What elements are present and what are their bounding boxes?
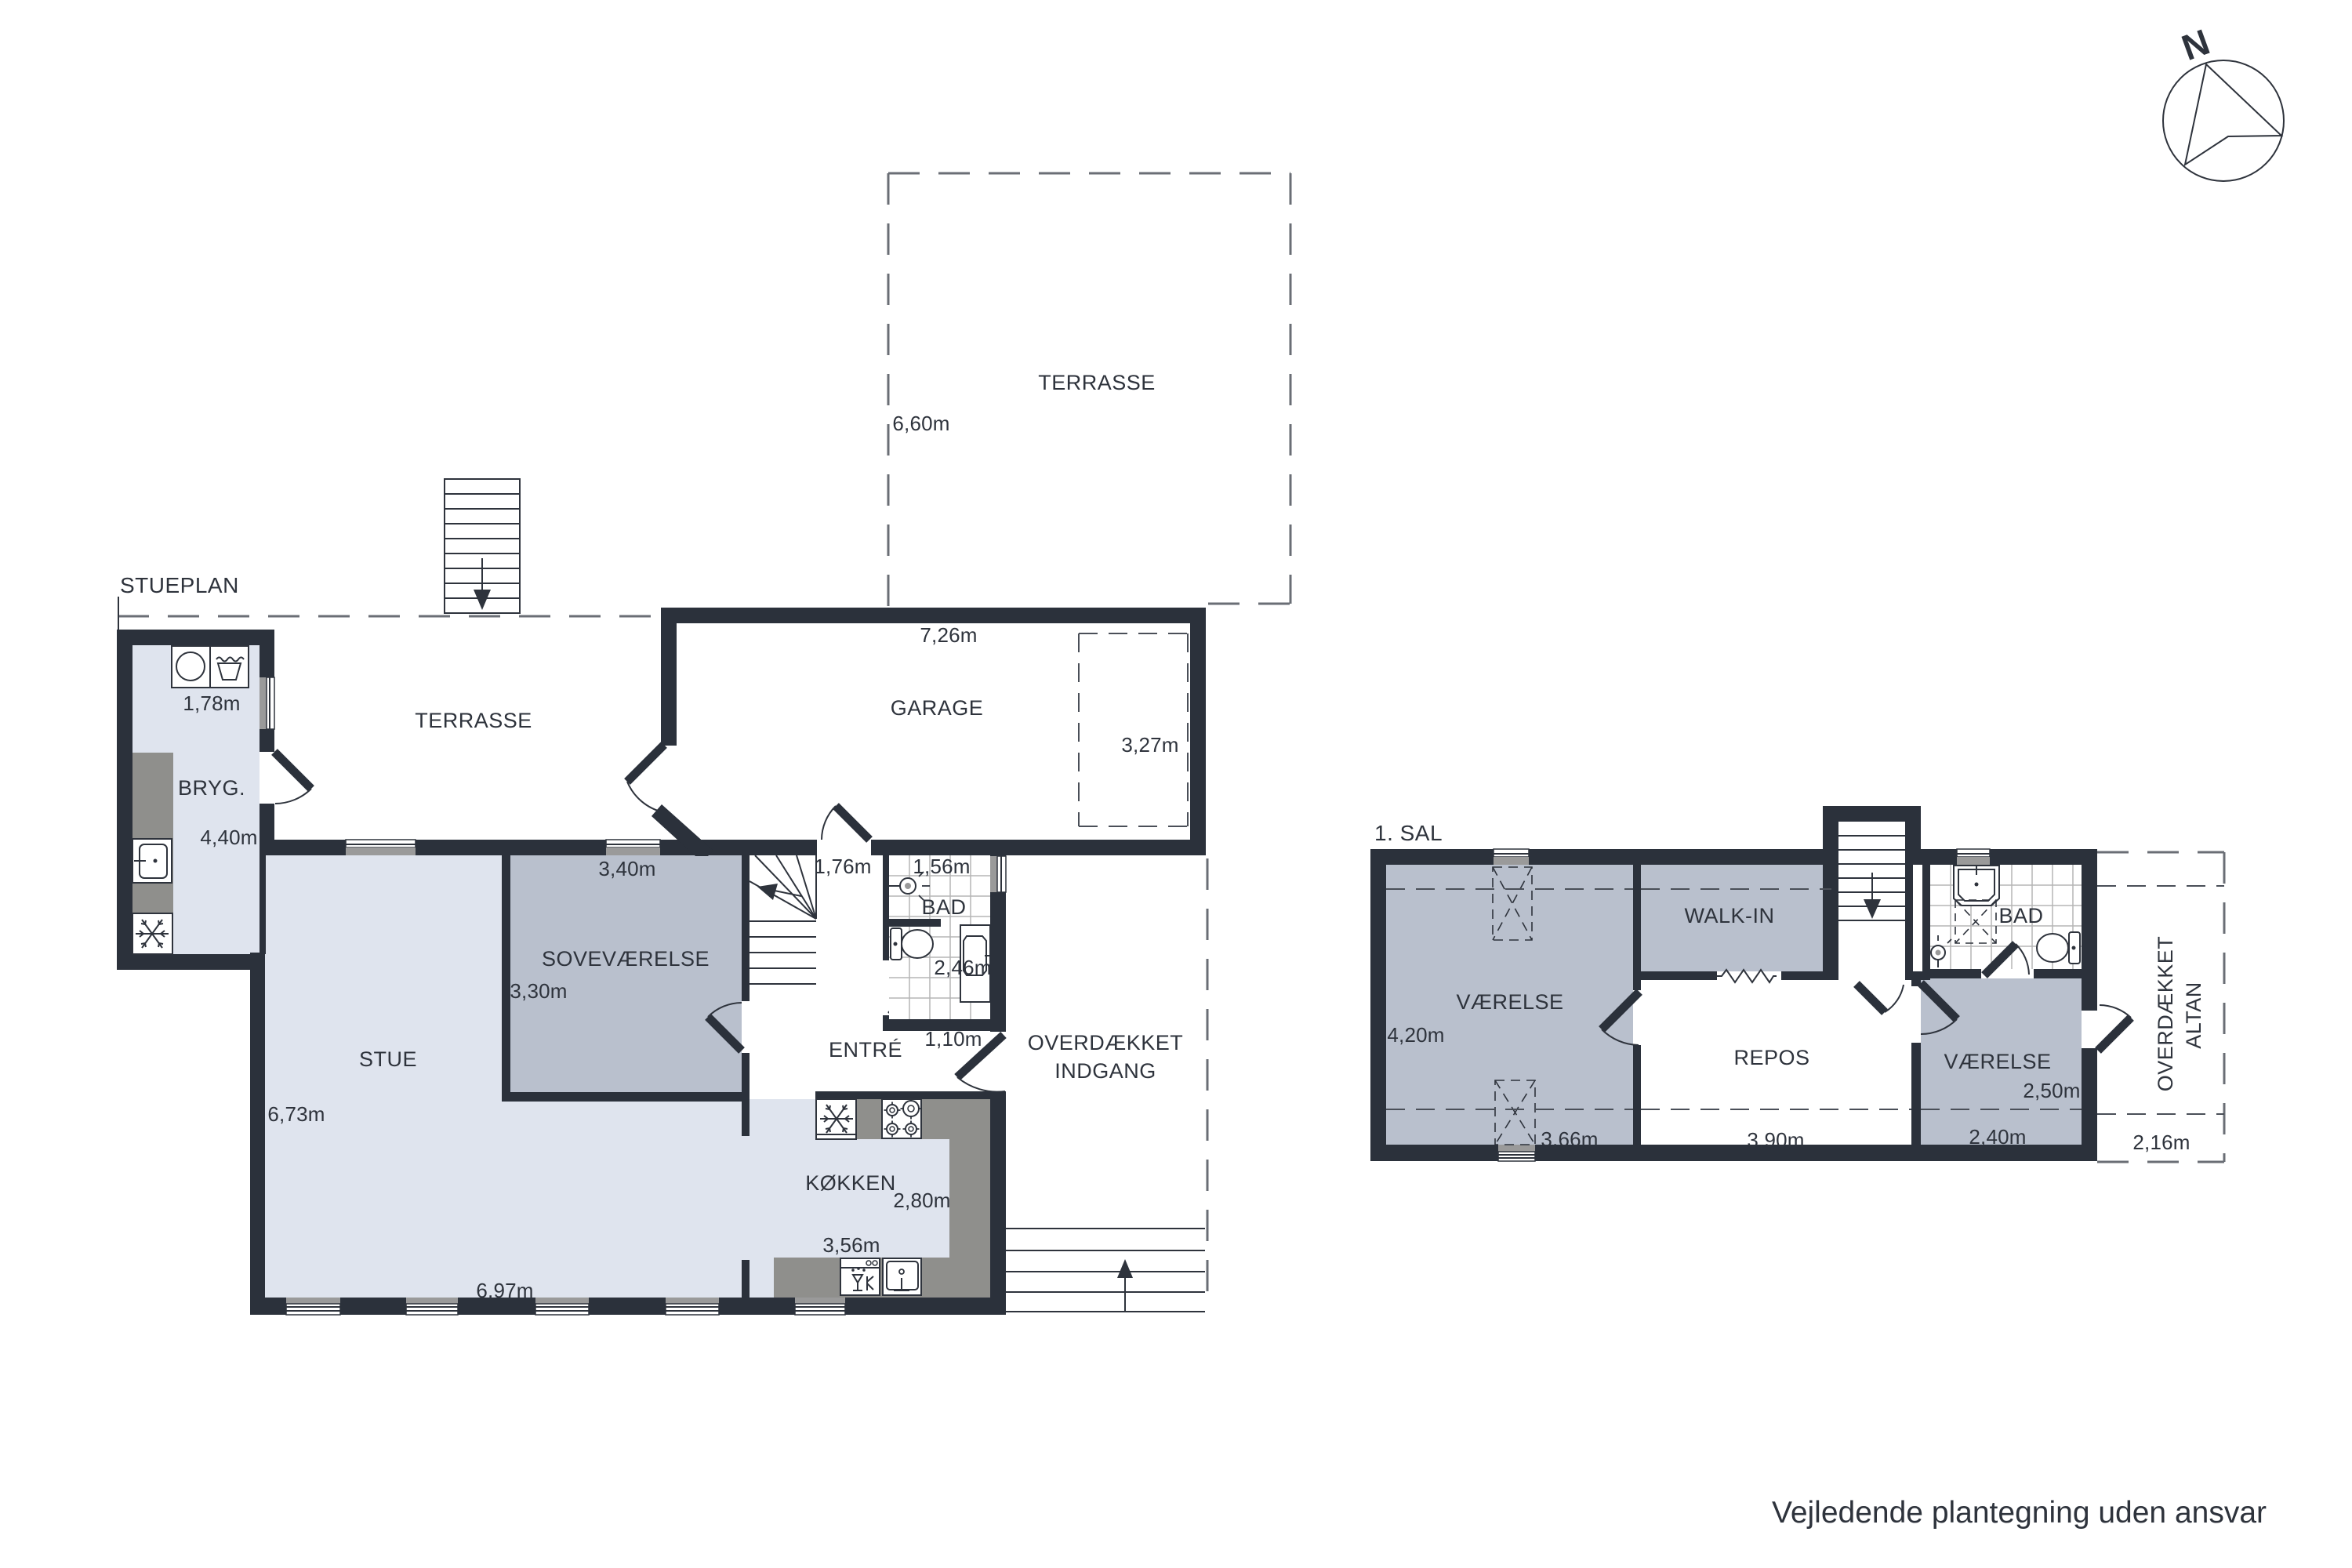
svg-text:2,16m: 2,16m xyxy=(2132,1131,2190,1154)
svg-text:2,46m: 2,46m xyxy=(934,956,991,979)
svg-text:1,78m: 1,78m xyxy=(183,691,240,715)
svg-text:TERRASSE: TERRASSE xyxy=(415,709,532,732)
svg-text:BAD: BAD xyxy=(921,895,966,919)
svg-text:VÆRELSE: VÆRELSE xyxy=(1944,1050,2051,1073)
svg-text:3,90m: 3,90m xyxy=(1747,1128,1804,1152)
svg-text:3,40m: 3,40m xyxy=(598,857,655,880)
svg-text:1,10m: 1,10m xyxy=(924,1027,982,1051)
svg-text:SOVEVÆRELSE: SOVEVÆRELSE xyxy=(542,947,710,971)
svg-text:2,50m: 2,50m xyxy=(2023,1079,2080,1102)
svg-text:INDGANG: INDGANG xyxy=(1054,1059,1156,1083)
svg-text:7,26m: 7,26m xyxy=(920,623,977,647)
svg-text:OVERDÆKKET: OVERDÆKKET xyxy=(1028,1031,1184,1054)
svg-text:VÆRELSE: VÆRELSE xyxy=(1456,990,1563,1014)
svg-text:2,80m: 2,80m xyxy=(893,1189,950,1212)
svg-text:Vejledende plantegning uden an: Vejledende plantegning uden ansvar xyxy=(1772,1496,2267,1530)
svg-text:STUE: STUE xyxy=(359,1047,417,1071)
svg-text:KØKKEN: KØKKEN xyxy=(805,1171,896,1195)
svg-text:1,56m: 1,56m xyxy=(913,855,970,878)
svg-text:OVERDÆKKET: OVERDÆKKET xyxy=(2154,936,2177,1092)
svg-text:WALK-IN: WALK-IN xyxy=(1684,904,1774,927)
svg-text:2,40m: 2,40m xyxy=(1969,1125,2026,1149)
svg-text:3,66m: 3,66m xyxy=(1541,1127,1598,1151)
svg-text:6,73m: 6,73m xyxy=(267,1102,325,1126)
svg-text:6,97m: 6,97m xyxy=(476,1279,533,1302)
svg-text:1,76m: 1,76m xyxy=(814,855,871,878)
svg-text:ALTAN: ALTAN xyxy=(2182,982,2205,1049)
svg-text:4,40m: 4,40m xyxy=(200,826,257,849)
svg-text:BRYG.: BRYG. xyxy=(178,776,245,800)
svg-text:3,56m: 3,56m xyxy=(822,1233,880,1257)
svg-text:STUEPLAN: STUEPLAN xyxy=(120,573,239,597)
svg-text:3,30m: 3,30m xyxy=(510,979,567,1003)
svg-text:ENTRÉ: ENTRÉ xyxy=(829,1038,902,1062)
svg-text:TERRASSE: TERRASSE xyxy=(1038,371,1156,394)
svg-text:6,60m: 6,60m xyxy=(892,412,949,435)
svg-text:3,27m: 3,27m xyxy=(1121,733,1178,757)
svg-text:BAD: BAD xyxy=(1998,904,2043,927)
svg-text:4,20m: 4,20m xyxy=(1387,1023,1444,1047)
svg-text:1. SAL: 1. SAL xyxy=(1374,821,1443,845)
svg-text:REPOS: REPOS xyxy=(1733,1046,1809,1069)
svg-text:GARAGE: GARAGE xyxy=(891,696,984,720)
